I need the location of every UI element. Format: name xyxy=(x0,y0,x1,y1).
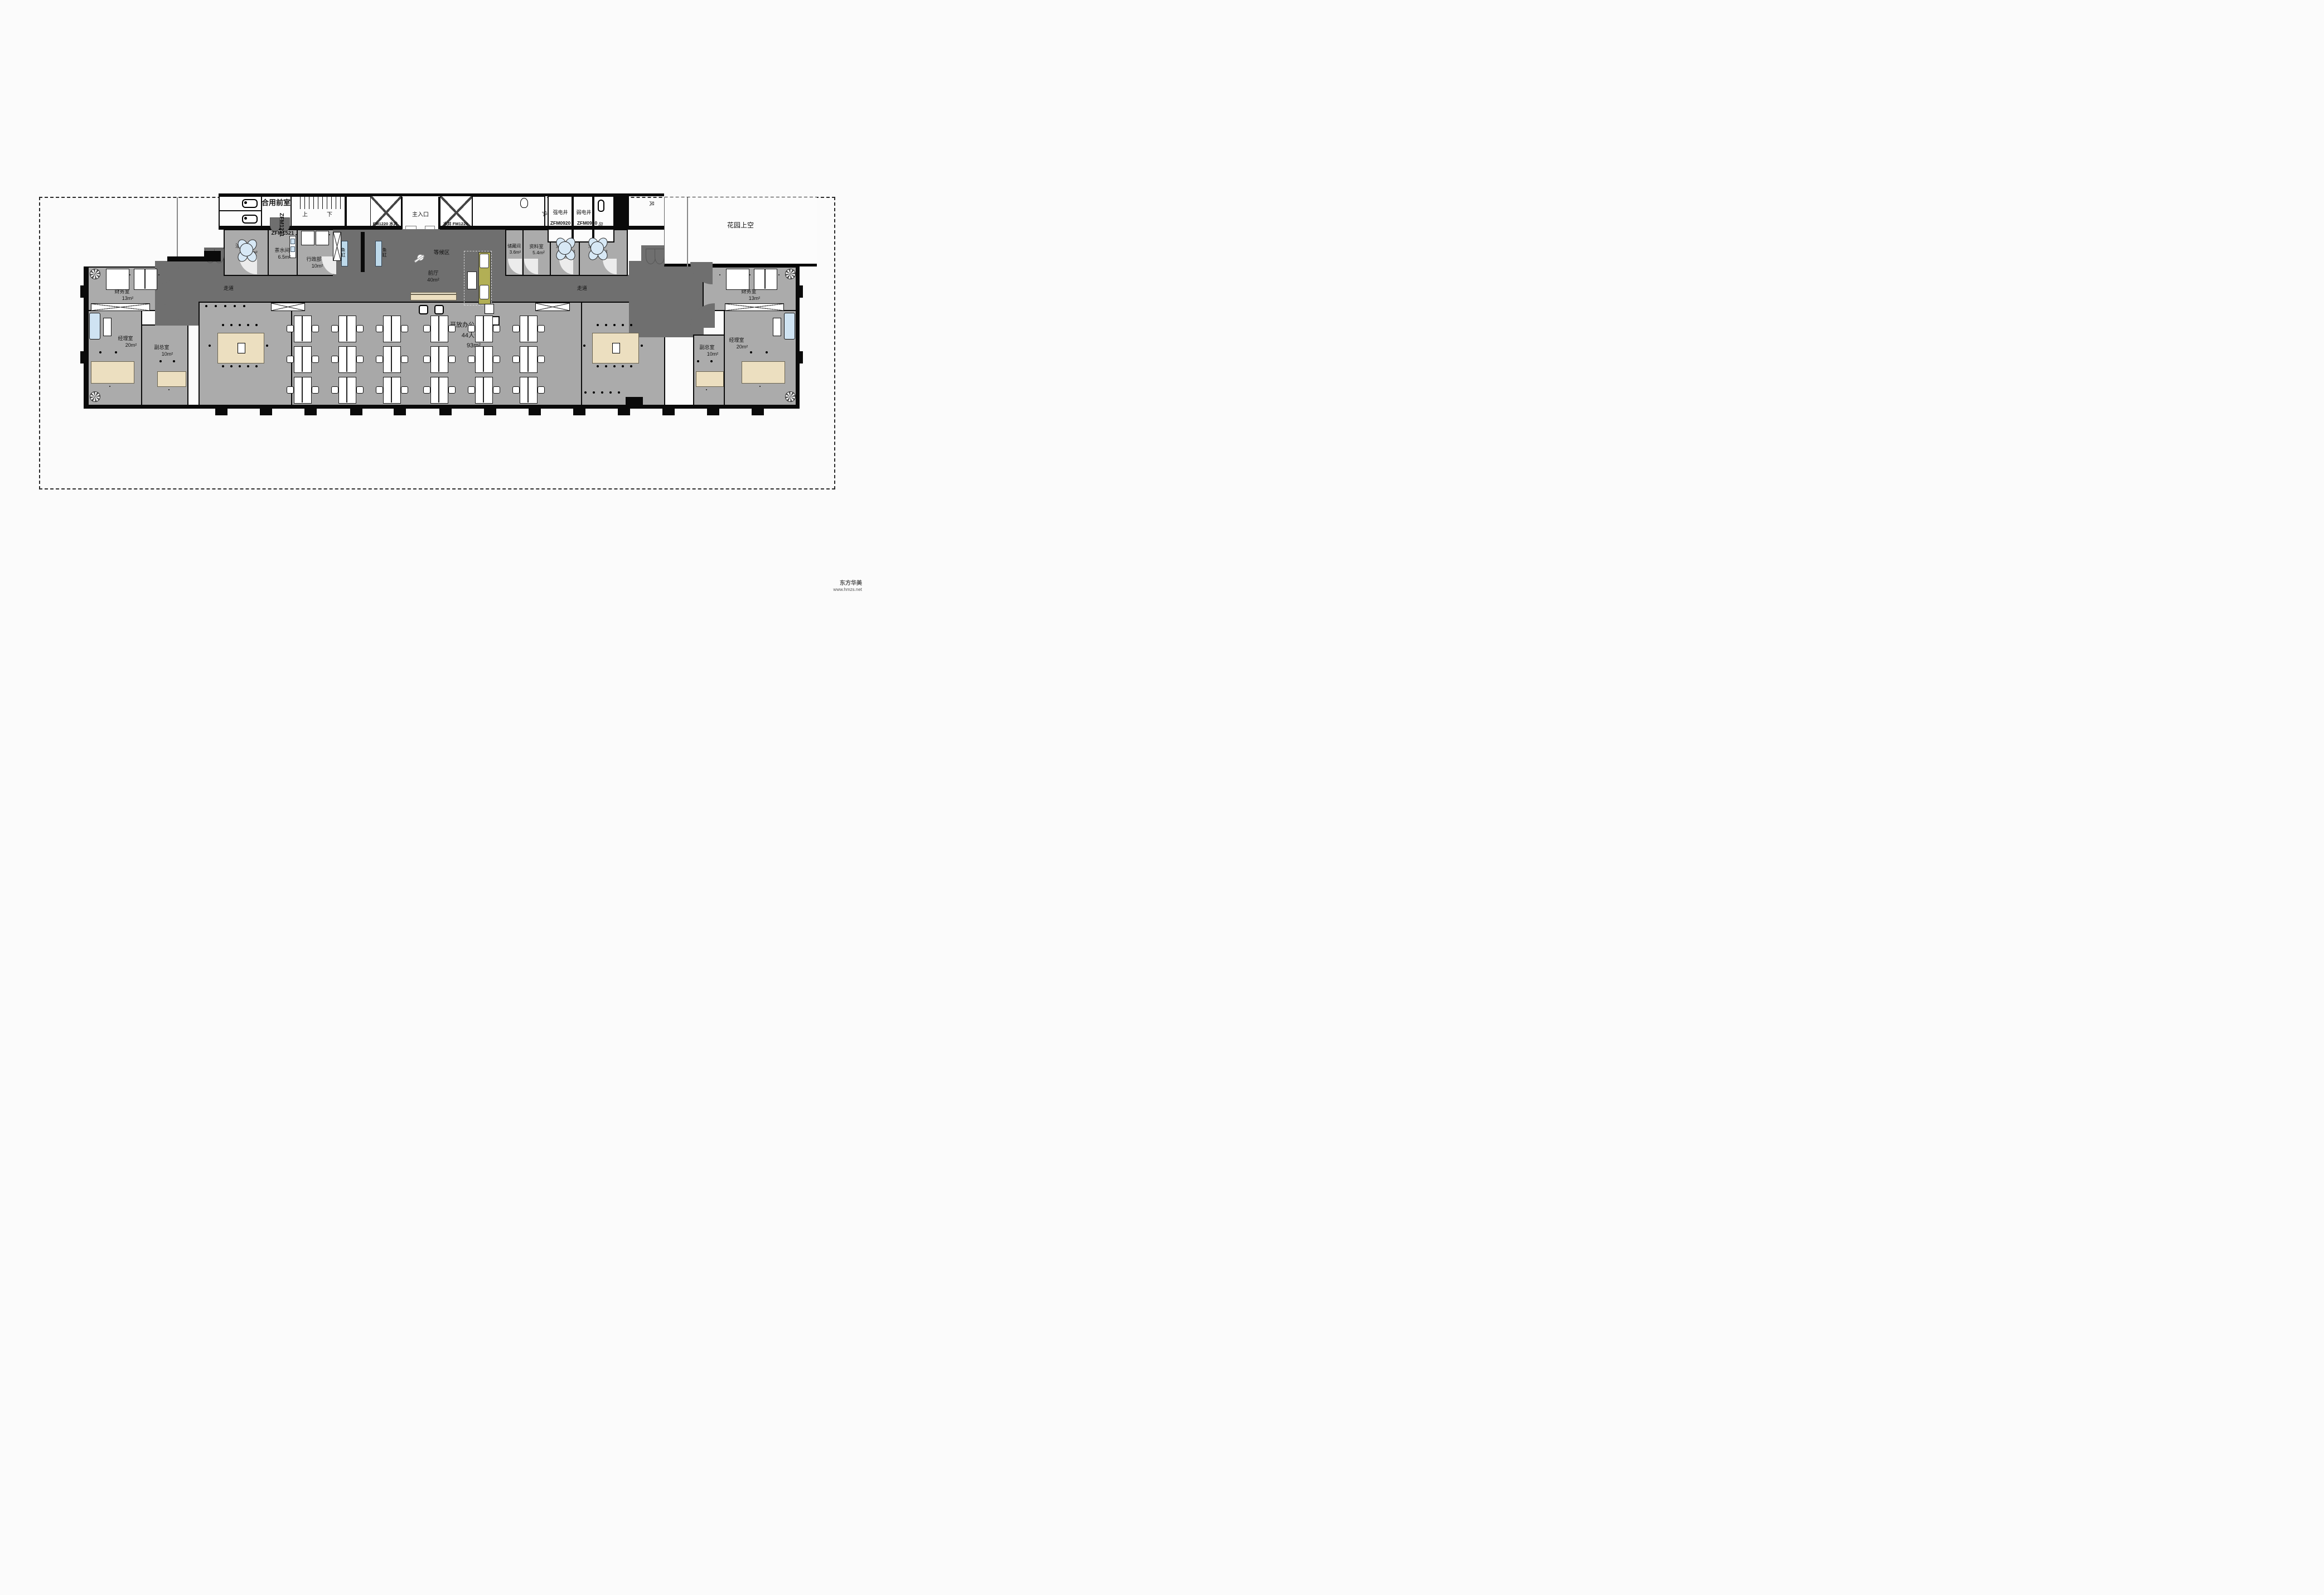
cabinet-x-finance-left xyxy=(91,303,150,311)
open-office-desk-pod xyxy=(520,377,538,404)
column-bump xyxy=(304,409,317,415)
wc-stall-divider xyxy=(220,210,261,211)
office-chair xyxy=(168,389,170,390)
water-heater-icon xyxy=(520,198,528,208)
chair xyxy=(630,324,632,326)
stair-treads xyxy=(300,197,343,209)
chair xyxy=(255,365,258,367)
chair xyxy=(312,325,319,332)
column-bump xyxy=(618,409,630,415)
chair xyxy=(401,356,408,363)
column-bump xyxy=(350,409,362,415)
chair xyxy=(448,356,456,363)
open-office-desk-pod xyxy=(430,377,448,404)
label-tea-name: 茶水间 xyxy=(267,248,298,253)
chair xyxy=(583,345,585,347)
manager-coffee-table xyxy=(103,318,112,336)
manager-coffee-table xyxy=(773,318,781,336)
desk-divider xyxy=(346,377,347,403)
column-bump xyxy=(484,409,496,415)
desk-divider xyxy=(302,346,303,372)
column-bump xyxy=(752,409,764,415)
desk-divider xyxy=(483,316,484,341)
finance-desk xyxy=(106,269,129,290)
finance-desk xyxy=(134,269,157,290)
desk-divider xyxy=(527,346,529,372)
chair xyxy=(115,351,117,353)
chair xyxy=(750,351,752,353)
office-chair xyxy=(109,386,110,387)
column-bump xyxy=(439,409,452,415)
column-bump xyxy=(260,409,272,415)
chair xyxy=(423,386,430,394)
chair xyxy=(266,345,268,347)
guest-chair xyxy=(609,391,612,394)
chair xyxy=(209,345,211,347)
label-storage-name: 储藏间 xyxy=(503,244,525,249)
room-machine xyxy=(472,196,545,230)
chair xyxy=(376,386,383,394)
label-lobby-name: 前厅 xyxy=(419,271,447,277)
chair xyxy=(641,345,643,347)
manager-sofa xyxy=(784,313,795,340)
column-bump xyxy=(80,285,87,298)
sink-basin xyxy=(290,239,295,244)
column-bump xyxy=(204,251,221,261)
label-deputy-left-name: 副总室 xyxy=(146,345,177,350)
wall-lobby-west-stub xyxy=(361,232,365,272)
label-garden: 花园上空 xyxy=(724,222,757,229)
finance-desk xyxy=(726,269,749,290)
conference-table-inset xyxy=(612,343,620,353)
chair xyxy=(159,360,162,362)
cabinet-x-row-left xyxy=(271,303,305,311)
chair xyxy=(538,386,545,394)
chair xyxy=(312,356,319,363)
chair xyxy=(605,324,607,326)
label-admin-area: 10m² xyxy=(299,263,336,269)
chair xyxy=(468,386,475,394)
label-deputy-left-area: 10m² xyxy=(152,351,183,357)
wall-air-shaft xyxy=(613,196,629,229)
open-office-desk-pod xyxy=(430,346,448,373)
label-shared-front: 合用前室 xyxy=(258,199,294,207)
chair xyxy=(468,356,475,363)
column-bump xyxy=(573,409,585,415)
office-chair xyxy=(706,389,707,390)
open-office-desk-pod xyxy=(294,316,312,342)
label-corridor-left: 走道 xyxy=(219,285,239,291)
sofa-cushion xyxy=(480,254,489,268)
room-deputy-left xyxy=(141,324,188,408)
chair xyxy=(287,386,294,394)
negotiation-table xyxy=(590,241,604,255)
chair xyxy=(247,324,249,326)
guest-chair xyxy=(618,391,620,394)
open-office-desk-pod xyxy=(338,346,356,373)
chair xyxy=(597,365,599,367)
column-bump xyxy=(662,409,675,415)
entry-door-leaf xyxy=(405,226,417,230)
plant-icon xyxy=(90,269,100,279)
toilet-icon xyxy=(242,215,258,224)
open-office-desk-pod xyxy=(430,316,448,342)
chair xyxy=(356,356,364,363)
chair xyxy=(376,325,383,332)
label-stair-up: 上 xyxy=(302,212,308,218)
manager-desk xyxy=(742,361,785,384)
plant-icon xyxy=(90,391,100,402)
desk-divider xyxy=(391,346,392,372)
label-manager-left-area: 20m² xyxy=(115,342,147,348)
desk-divider xyxy=(144,269,146,289)
desk-divider xyxy=(438,316,439,341)
chair xyxy=(448,386,456,394)
chair xyxy=(630,365,632,367)
chair xyxy=(622,324,624,326)
chair xyxy=(613,365,616,367)
open-office-desk-pod xyxy=(475,316,493,342)
open-office-desk-pod xyxy=(338,316,356,342)
label-air-shaft-3: 风 xyxy=(648,201,654,206)
conference-table-inset xyxy=(238,343,245,353)
sofa-cushion xyxy=(480,285,489,299)
label-lobby-area: 40m² xyxy=(419,278,447,284)
desk-divider xyxy=(346,316,347,341)
guest-chair xyxy=(593,391,595,394)
desk-divider xyxy=(764,269,766,289)
label-stair-down: 下 xyxy=(327,212,332,218)
office-chair xyxy=(759,386,761,387)
open-office-desk-pod xyxy=(520,346,538,373)
label-finance-right-area: 13m² xyxy=(739,295,769,301)
wall-top xyxy=(219,193,664,196)
chair xyxy=(356,386,364,394)
chair xyxy=(331,386,338,394)
chair xyxy=(512,386,520,394)
chair xyxy=(538,356,545,363)
floor-plan: 合用前室 ZFM1221 上 下 主入口 FM1220 水井 水井 FM1220… xyxy=(0,0,868,595)
open-office-desk-pod xyxy=(383,346,401,373)
manager-desk xyxy=(91,361,134,384)
left-window-mullion xyxy=(177,197,178,259)
deputy-desk xyxy=(696,371,724,387)
chair xyxy=(287,325,294,332)
chair xyxy=(749,274,751,275)
column-bump xyxy=(215,409,227,415)
guest-chair xyxy=(243,305,245,307)
column-bump xyxy=(796,285,803,298)
wall-row-divider-right xyxy=(440,226,664,230)
deputy-desk xyxy=(157,371,186,387)
desk-divider xyxy=(302,316,303,341)
desk-divider xyxy=(391,316,392,341)
label-door-zfm1521: ZFM1521 xyxy=(265,231,300,237)
chair xyxy=(255,324,258,326)
reception-counter-top xyxy=(410,292,457,294)
label-deputy-right-name: 副总室 xyxy=(691,345,723,350)
chair xyxy=(296,234,297,235)
column-bump xyxy=(707,409,719,415)
room-shaft-small xyxy=(346,196,371,230)
watermark-line2: www.hmzs.net xyxy=(833,588,862,593)
label-admin-name: 行政部 xyxy=(296,256,332,262)
chair xyxy=(697,360,699,362)
chair xyxy=(622,365,624,367)
label-fish-tank-a: 鱼缸 xyxy=(340,248,345,258)
cabinet-x-finance-right xyxy=(725,303,784,311)
guest-chair xyxy=(224,305,226,307)
chair xyxy=(613,324,616,326)
chair xyxy=(230,324,233,326)
label-manager-right-name: 经理室 xyxy=(720,337,753,343)
reception-counter xyxy=(410,294,457,300)
negotiation-table xyxy=(558,241,572,255)
label-finance-left-area: 13m² xyxy=(113,295,143,301)
open-office-desk-pod xyxy=(294,377,312,404)
chair xyxy=(287,356,294,363)
chair xyxy=(423,356,430,363)
chair xyxy=(173,360,175,362)
chair xyxy=(434,305,444,314)
label-door-zfm0920-a: ZFM0920 xyxy=(548,221,573,226)
plant-icon xyxy=(785,391,796,402)
chair xyxy=(129,274,130,275)
column-bump xyxy=(80,351,87,363)
admin-desk xyxy=(301,231,314,245)
chair xyxy=(419,305,428,314)
chair xyxy=(493,386,500,394)
finance-desk xyxy=(754,269,777,290)
chair xyxy=(356,325,364,332)
chair xyxy=(605,365,607,367)
guest-chair xyxy=(584,391,587,394)
door-leaf-east-2 xyxy=(655,249,665,264)
desk-divider xyxy=(527,377,529,403)
cabinet-x-row-right xyxy=(535,303,570,311)
label-corridor-right: 走道 xyxy=(572,285,592,291)
podium-column xyxy=(626,397,643,406)
label-manager-left-name: 经理室 xyxy=(109,336,142,341)
open-office-desk-pod xyxy=(338,377,356,404)
label-manager-right-area: 20m² xyxy=(726,344,758,350)
desk-divider xyxy=(346,346,347,372)
desk-divider xyxy=(391,377,392,403)
chair xyxy=(222,365,224,367)
chair xyxy=(766,351,768,353)
label-door-zfm0920-b: ZFM0920 xyxy=(574,221,600,226)
chair xyxy=(597,324,599,326)
open-office-desk-pod xyxy=(520,316,538,342)
chair xyxy=(239,365,241,367)
open-office-desk-pod xyxy=(475,346,493,373)
open-office-desk-pod xyxy=(383,377,401,404)
guest-chair xyxy=(215,305,217,307)
manager-sofa xyxy=(89,313,100,340)
label-waiting-area: 等候区 xyxy=(427,250,456,256)
label-fish-tank-b: 鱼缸 xyxy=(381,248,386,258)
chair xyxy=(512,325,520,332)
chair xyxy=(401,325,408,332)
chair xyxy=(331,325,338,332)
room-weak-shaft xyxy=(573,196,593,243)
label-water-shaft-left: FM1220 水井 xyxy=(369,222,401,226)
chair xyxy=(222,324,224,326)
guest-chair xyxy=(205,305,207,307)
label-strong-shaft: 强电井 xyxy=(548,210,573,215)
admin-desk xyxy=(316,231,329,245)
negotiation-table xyxy=(240,243,253,256)
chair xyxy=(247,365,249,367)
room-strong-shaft xyxy=(548,196,573,243)
chair xyxy=(99,351,101,353)
desk-divider xyxy=(527,316,529,341)
column-bump xyxy=(796,351,803,363)
chair xyxy=(719,274,720,275)
desk-divider xyxy=(438,377,439,403)
chair xyxy=(538,325,545,332)
column-bump xyxy=(529,409,541,415)
chair xyxy=(329,234,330,235)
label-storage-area: 3.6m² xyxy=(505,250,526,255)
label-water-shaft-right: 水井 FM1220 xyxy=(439,222,472,226)
label-deputy-right-area: 10m² xyxy=(697,351,728,357)
chair xyxy=(423,325,430,332)
watermark-line1: 东方华美 xyxy=(840,580,862,586)
coffee-table xyxy=(467,272,477,289)
plant-icon xyxy=(785,269,796,279)
open-office-desk-pod xyxy=(475,377,493,404)
chair xyxy=(468,325,475,332)
desk-divider xyxy=(483,377,484,403)
chair xyxy=(312,386,319,394)
desk-divider xyxy=(438,346,439,372)
desk-divider xyxy=(302,377,303,403)
chair xyxy=(710,360,713,362)
wall-bottom xyxy=(88,405,798,409)
open-office-desk-pod xyxy=(294,346,312,373)
chair xyxy=(230,365,233,367)
chair xyxy=(158,274,159,275)
column-bump xyxy=(394,409,406,415)
label-archive-name: 资料室 xyxy=(523,244,550,250)
garden-window-mullion xyxy=(687,197,688,266)
picture-frame xyxy=(485,304,494,314)
guest-chair xyxy=(234,305,236,307)
chair xyxy=(493,356,500,363)
label-archive-area: 5.4m² xyxy=(525,250,552,256)
chair xyxy=(493,325,500,332)
open-office-desk-pod xyxy=(383,316,401,342)
chair xyxy=(401,386,408,394)
chair xyxy=(448,325,456,332)
chair xyxy=(778,274,779,275)
entry-door-leaf xyxy=(425,226,435,230)
toilet-icon xyxy=(598,200,604,212)
label-weak-shaft: 弱电井 xyxy=(573,210,595,215)
chair xyxy=(239,324,241,326)
chair xyxy=(331,356,338,363)
desk-divider xyxy=(483,346,484,372)
guest-chair xyxy=(601,391,603,394)
chair xyxy=(512,356,520,363)
toilet-icon xyxy=(242,199,258,208)
label-main-entrance: 主入口 xyxy=(405,212,436,218)
chair xyxy=(376,356,383,363)
